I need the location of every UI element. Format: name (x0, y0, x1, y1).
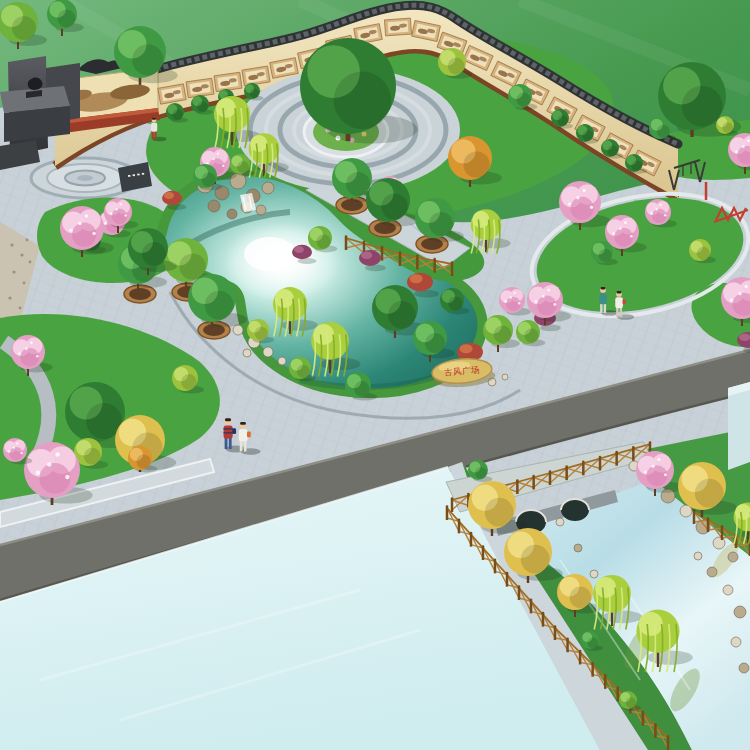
person-hair (616, 291, 621, 293)
rock (263, 347, 273, 357)
canopy-shade (494, 326, 512, 344)
fence-post-cap (582, 461, 585, 464)
blossom-dot (576, 196, 579, 199)
fence-post-cap (591, 662, 594, 665)
blossom-dot (652, 465, 655, 468)
blossom-dot (624, 221, 627, 224)
shrub-highlight (460, 344, 473, 353)
rock (723, 585, 733, 595)
canopy-shade (197, 101, 208, 112)
rock (739, 663, 749, 673)
willow-highlight (639, 612, 663, 636)
canopy-shade (475, 467, 487, 479)
canopy-shade (181, 374, 197, 390)
fence-post-cap (451, 497, 454, 500)
fence-post-cap (721, 525, 724, 528)
blossom-dot (30, 341, 33, 344)
blossom-cluster (72, 223, 96, 247)
fence-post-cap (616, 686, 619, 689)
blossom-dot (735, 150, 738, 153)
fence-post-cap (451, 261, 454, 264)
shrub-highlight (164, 192, 174, 199)
person-shadow (241, 448, 261, 455)
blossom-dot (85, 214, 89, 218)
mural-panel (186, 78, 214, 97)
person-leg (155, 131, 157, 139)
person-leg (620, 307, 622, 317)
person-shadow (152, 137, 166, 142)
blossom-dot (25, 347, 28, 350)
blossom-dot (20, 452, 22, 454)
canopy-shade (334, 72, 392, 130)
blossom-dot (36, 355, 39, 358)
canopy-shade (425, 333, 445, 353)
fence-post-cap (565, 465, 568, 468)
blossom-dot (55, 452, 59, 456)
person-shadow (601, 310, 619, 316)
blossom-dot (510, 296, 512, 298)
fence-post-cap (549, 470, 552, 473)
rock (574, 544, 582, 552)
blossom-dot (590, 206, 593, 209)
blossom-dot (738, 292, 741, 295)
canopy-shade (136, 454, 150, 468)
fence-post-cap (416, 255, 419, 258)
fence-post-cap (467, 493, 470, 496)
blossom-cluster (39, 463, 70, 494)
canopy-shade (132, 44, 163, 75)
shrub-highlight (739, 333, 750, 341)
canopy-shade (657, 125, 670, 138)
fence-post-cap (363, 241, 366, 244)
willow-highlight (275, 289, 294, 308)
canopy-shade (448, 58, 465, 75)
blossom-dot (659, 204, 661, 206)
blossom-cluster (614, 228, 633, 247)
scene-canvas: 古风广场 (0, 0, 750, 750)
canopy-shade (255, 327, 268, 340)
rock (243, 349, 251, 357)
fence-post-cap (654, 723, 657, 726)
person-torso (599, 293, 607, 304)
canopy-shade (625, 697, 636, 708)
person-bag (623, 299, 626, 304)
willow-highlight (472, 211, 489, 228)
blossom-dot (65, 475, 69, 479)
fence-post-cap (615, 451, 618, 454)
blossom-dot (513, 292, 515, 294)
fence-post-cap (554, 625, 557, 628)
planter-soil (129, 288, 151, 300)
rock (728, 552, 738, 562)
fence-post-cap (506, 572, 509, 575)
fence-post-cap (542, 612, 545, 615)
canopy-shade (172, 109, 183, 120)
mural-panel (214, 72, 242, 91)
canopy-shade (463, 151, 489, 177)
fence-post-cap (599, 456, 602, 459)
canopy-shade (388, 301, 416, 329)
blossom-dot (36, 471, 40, 475)
fence-post-cap (516, 479, 519, 482)
person-torso (615, 297, 623, 308)
rock (256, 205, 266, 215)
blossom-dot (747, 139, 750, 142)
blossom-cluster (537, 296, 557, 316)
blossom-dot (504, 300, 506, 302)
fence-post-cap (433, 258, 436, 261)
person-leg (244, 440, 247, 451)
person-hair (600, 287, 605, 289)
person-torso (239, 429, 248, 442)
blossom-dot (664, 214, 666, 216)
canopy-shade (521, 545, 550, 574)
person-hair (152, 118, 156, 120)
person-bag (247, 432, 251, 438)
fence-post-cap (494, 559, 497, 562)
canopy-shade (381, 193, 407, 219)
canopy-shade (179, 253, 205, 279)
fence-post-cap (532, 475, 535, 478)
fence-post-cap (345, 235, 348, 238)
rock (694, 552, 702, 560)
canopy-shade (682, 86, 723, 127)
canopy-shade (722, 122, 733, 133)
canopy-shade (142, 242, 166, 266)
blossom-dot (115, 208, 117, 210)
canopy-shade (485, 498, 514, 527)
canopy-shade (346, 172, 370, 196)
fence-post-cap (632, 446, 635, 449)
canopy-shade (607, 145, 618, 156)
canopy-shade (250, 89, 260, 99)
blossom-dot (125, 214, 127, 216)
blossom-dot (742, 145, 745, 148)
blossom-dot (120, 203, 122, 205)
person-leg (616, 307, 618, 317)
rock (227, 209, 237, 219)
willow-highlight (250, 135, 267, 152)
willow-highlight (313, 324, 334, 345)
corner-structure (728, 382, 750, 470)
fence-post-cap (470, 532, 473, 535)
rock (731, 637, 741, 647)
fence-post-cap (530, 599, 533, 602)
blossom-dot (568, 202, 571, 205)
rock (502, 374, 508, 380)
blossom-dot (657, 458, 660, 461)
blossom-dot (518, 302, 520, 304)
blossom-dot (730, 298, 733, 301)
person-leg (229, 437, 232, 449)
person-leg (604, 303, 606, 313)
blossom-cluster (571, 197, 594, 220)
canopy-shade (570, 587, 592, 609)
blossom-dot (13, 446, 15, 448)
canopy-shade (557, 115, 568, 126)
pond-highlight (244, 237, 296, 271)
blossom-dot (47, 462, 51, 466)
fence-post-cap (518, 585, 521, 588)
rock (707, 567, 717, 577)
blossom-dot (542, 295, 545, 298)
canopy-shade (201, 172, 215, 186)
canopy-shade (316, 234, 330, 248)
fence-post-cap (649, 441, 652, 444)
blossom-dot (656, 208, 658, 210)
canopy-shade (599, 249, 612, 262)
person-shadow (617, 314, 635, 320)
fence-post-cap (458, 519, 461, 522)
canopy-shade (695, 479, 724, 508)
blossom-dot (8, 450, 10, 452)
blossom-dot (92, 232, 96, 236)
rock (278, 357, 286, 365)
blossom-dot (104, 222, 106, 224)
blossom-dot (553, 303, 556, 306)
shrub-highlight (294, 246, 304, 253)
fence-post-cap (642, 711, 645, 714)
person-leg (600, 303, 602, 313)
person-leg (225, 437, 228, 449)
canopy-shade (12, 16, 36, 40)
blossom-dot (78, 222, 82, 226)
canopy-shade (631, 160, 642, 171)
person-bag (232, 428, 236, 434)
blossom-dot (630, 235, 633, 238)
blossom-dot (650, 212, 652, 214)
shrub-highlight (361, 251, 372, 259)
willow-highlight (216, 98, 236, 118)
blossom-dot (583, 189, 586, 192)
person-leg (240, 440, 243, 451)
canopy-shade (58, 10, 76, 28)
blossom-dot (644, 470, 647, 473)
canopy-shade (84, 448, 101, 465)
canopy-shade (516, 92, 530, 106)
blossom-dot (16, 442, 18, 444)
person-leg (152, 131, 154, 139)
canopy-shade (429, 212, 453, 236)
fence-post-cap (604, 674, 607, 677)
blossom-dot (612, 232, 615, 235)
blossom-dot (18, 352, 21, 355)
blossom-dot (547, 289, 550, 292)
fence-post-cap (381, 246, 384, 249)
blossom-dot (110, 212, 112, 214)
fence-post-cap (579, 650, 582, 653)
shirt-stripe (224, 428, 233, 429)
blossom-dot (212, 158, 214, 160)
person-torso (151, 123, 157, 132)
rock (556, 518, 564, 526)
fence-post-cap (399, 251, 402, 254)
rock (590, 570, 598, 578)
fence-post-cap (707, 517, 710, 520)
landscape-render: 古风广场 (0, 0, 750, 750)
blossom-dot (664, 473, 667, 476)
shrub-highlight (410, 274, 423, 283)
pale-block-face (728, 382, 750, 470)
blossom-dot (217, 153, 219, 155)
rock (734, 606, 746, 618)
person-hair (225, 418, 231, 421)
medallion-center (77, 175, 93, 181)
rock (233, 325, 243, 335)
canopy-shade (354, 381, 370, 397)
canopy-shade (297, 365, 310, 378)
rock (262, 182, 274, 194)
canopy-shade (237, 161, 249, 173)
blossom-cluster (646, 465, 667, 486)
blossom-dot (745, 285, 748, 288)
canopy-shade (587, 637, 598, 648)
fence-post-cap (446, 505, 449, 508)
canopy-shade (448, 296, 462, 310)
fence-post-cap (667, 735, 670, 738)
fence-post-cap (566, 637, 569, 640)
blossom-dot (619, 227, 622, 230)
blossom-dot (222, 165, 224, 167)
canopy-shade (582, 130, 593, 141)
blossom-dot (535, 300, 538, 303)
canopy-shade (524, 328, 538, 342)
willow-highlight (595, 577, 616, 598)
fence-post-cap (482, 545, 485, 548)
blossom-cluster (20, 348, 39, 367)
canopy-shade (205, 291, 234, 320)
canopy-shade (697, 247, 710, 260)
mural-panel (384, 18, 411, 36)
blossom-dot (69, 228, 73, 232)
rock (208, 200, 220, 212)
person-hair (240, 422, 246, 425)
shirt-stripe (224, 432, 233, 433)
